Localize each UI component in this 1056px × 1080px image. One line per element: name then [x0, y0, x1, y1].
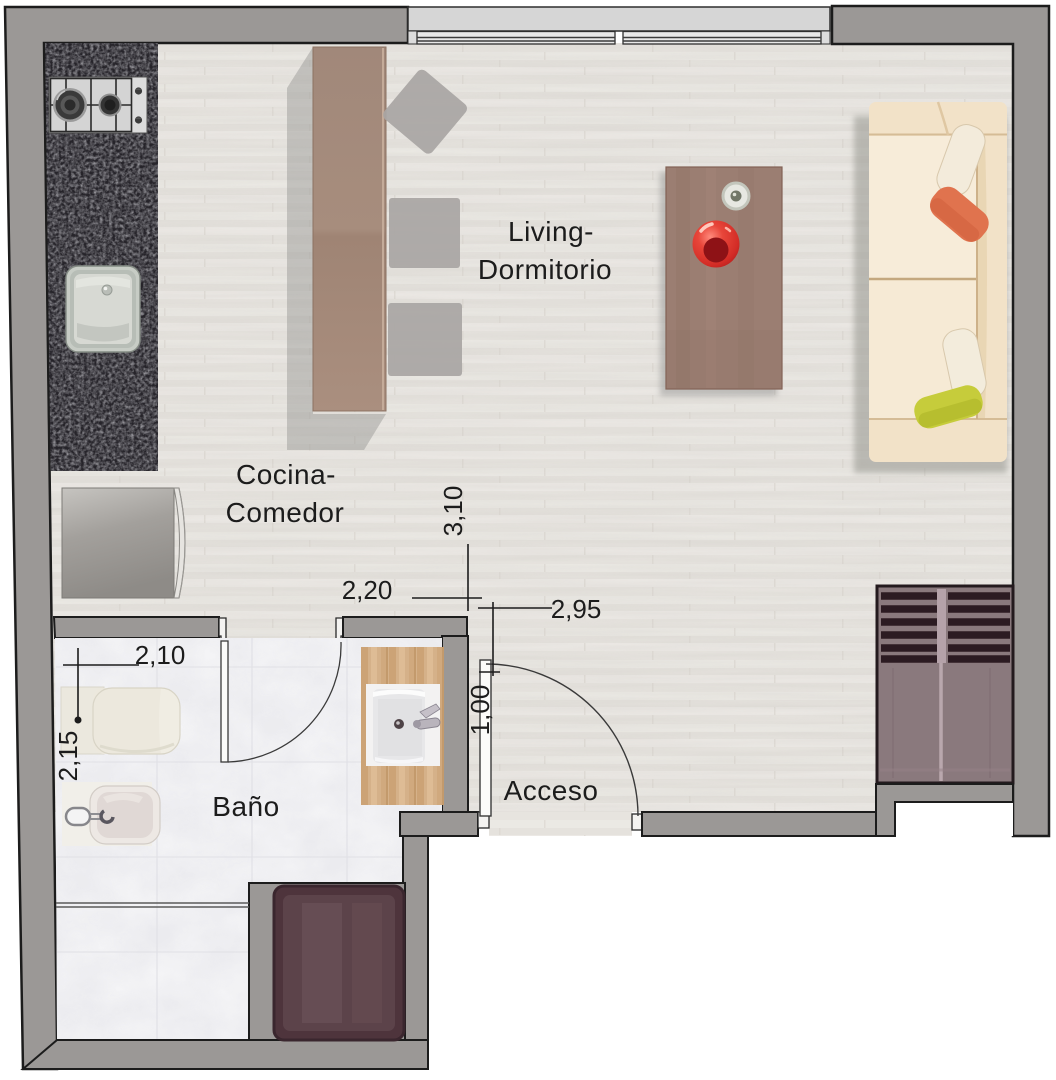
svg-text:Dormitorio: Dormitorio [478, 254, 612, 285]
svg-text:Living-: Living- [508, 216, 594, 247]
svg-text:Cocina-: Cocina- [236, 459, 336, 490]
svg-text:2,95: 2,95 [551, 594, 602, 624]
svg-text:2,20: 2,20 [342, 575, 393, 605]
svg-text:Comedor: Comedor [226, 497, 345, 528]
svg-text:Baño: Baño [212, 791, 279, 822]
svg-text:Acceso: Acceso [504, 775, 599, 806]
svg-text:2,10: 2,10 [135, 640, 186, 670]
svg-text:2,15: 2,15 [53, 731, 83, 782]
svg-text:1,00: 1,00 [465, 685, 495, 736]
svg-text:3,10: 3,10 [438, 486, 468, 537]
